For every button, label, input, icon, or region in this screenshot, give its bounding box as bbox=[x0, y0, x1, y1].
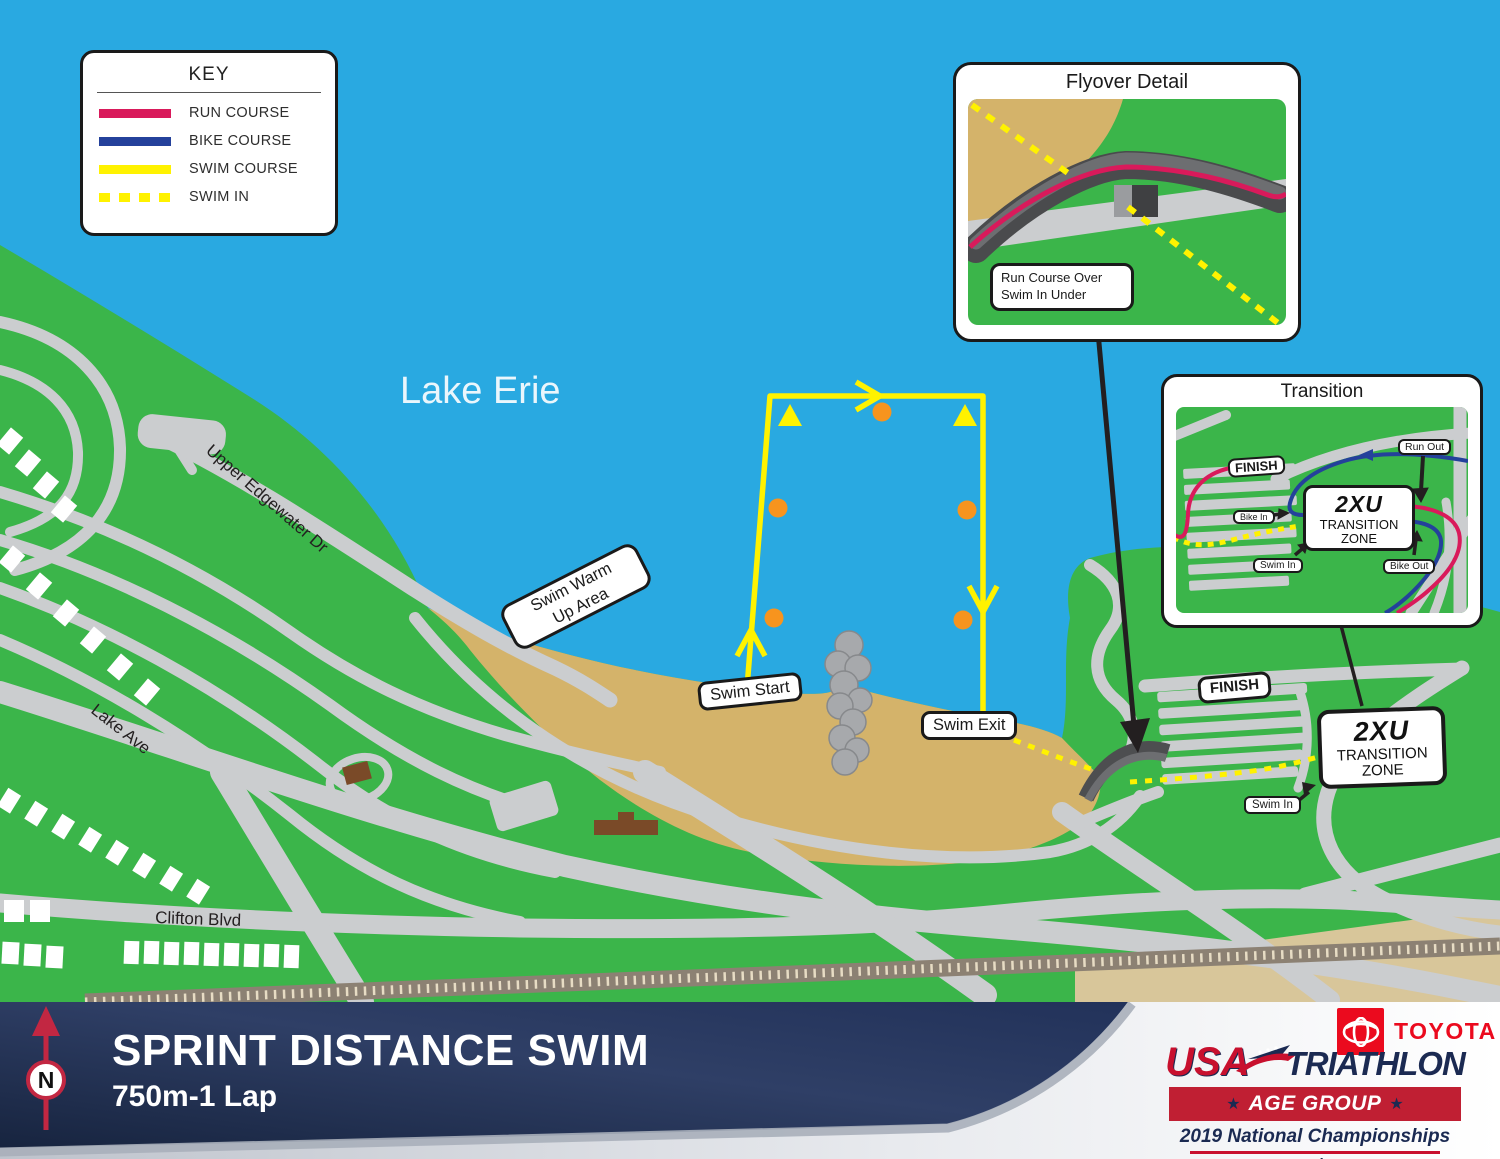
inset-run-out-label: Run Out bbox=[1398, 439, 1451, 455]
flyover-note: Run Course Over Swim In Under bbox=[990, 263, 1134, 311]
key-row-swim-in: SWIM IN bbox=[99, 189, 335, 205]
flyover-detail-inset: Flyover Detail Run Course Over Swim In U… bbox=[953, 62, 1301, 342]
bike-course-swatch bbox=[99, 137, 171, 146]
inset-bike-in-label: Bike In bbox=[1233, 510, 1275, 524]
road-label-clifton-blvd: Clifton Blvd bbox=[155, 908, 242, 930]
page-subtitle: 750m-1 Lap bbox=[112, 1080, 649, 1114]
compass-letter: N bbox=[38, 1067, 55, 1093]
transition-zone-sign: 2XU TRANSITION ZONE bbox=[1317, 706, 1448, 789]
flyover-inset-title: Flyover Detail bbox=[956, 71, 1298, 94]
star-icon: ★ bbox=[1226, 1094, 1240, 1114]
key-row-bike: BIKE COURSE bbox=[99, 133, 335, 149]
run-course-swatch bbox=[99, 109, 171, 118]
inset-bike-out-label: Bike Out bbox=[1383, 559, 1435, 574]
page-title: SPRINT DISTANCE SWIM bbox=[112, 1026, 649, 1076]
transition-inset: Transition bbox=[1161, 374, 1483, 628]
inset-finish-label: FINISH bbox=[1227, 455, 1285, 478]
map-key: KEY RUN COURSE BIKE COURSE SWIM COURSE S… bbox=[80, 50, 338, 236]
swim-in-label: Swim In bbox=[1244, 796, 1301, 814]
star-icon: ★ bbox=[1389, 1094, 1403, 1114]
swim-course-swatch bbox=[99, 165, 171, 174]
footer-banner: N SPRINT DISTANCE SWIM 750m-1 Lap TOYOTA… bbox=[0, 1002, 1500, 1159]
usat-triathlon-text: TRIATHLON bbox=[1286, 1045, 1465, 1083]
usa-triathlon-logo: USA TRIATHLON ★ AGE GROUP ★ 2019 Nationa… bbox=[1155, 1040, 1475, 1159]
course-map-page: Lake Erie Upper Edgewater Dr Lake Ave Cl… bbox=[0, 0, 1500, 1159]
key-row-swim: SWIM COURSE bbox=[99, 161, 335, 177]
key-row-run: RUN COURSE bbox=[99, 105, 335, 121]
key-title: KEY bbox=[83, 64, 335, 86]
red-rule bbox=[1190, 1151, 1440, 1154]
swim-exit-label: Swim Exit bbox=[921, 711, 1017, 740]
inset-swim-in-label: Swim In bbox=[1253, 558, 1303, 573]
championships-text: 2019 National Championships bbox=[1155, 1126, 1475, 1148]
age-group-text: AGE GROUP bbox=[1249, 1092, 1382, 1116]
lake-name-label: Lake Erie bbox=[400, 370, 561, 412]
inset-transition-zone-sign: 2XU TRANSITION ZONE bbox=[1303, 485, 1415, 551]
age-group-ribbon: ★ AGE GROUP ★ bbox=[1169, 1087, 1461, 1121]
map-title-block: SPRINT DISTANCE SWIM 750m-1 Lap bbox=[112, 1026, 649, 1114]
swim-in-swatch bbox=[99, 193, 171, 202]
transition-inset-title: Transition bbox=[1164, 381, 1480, 403]
